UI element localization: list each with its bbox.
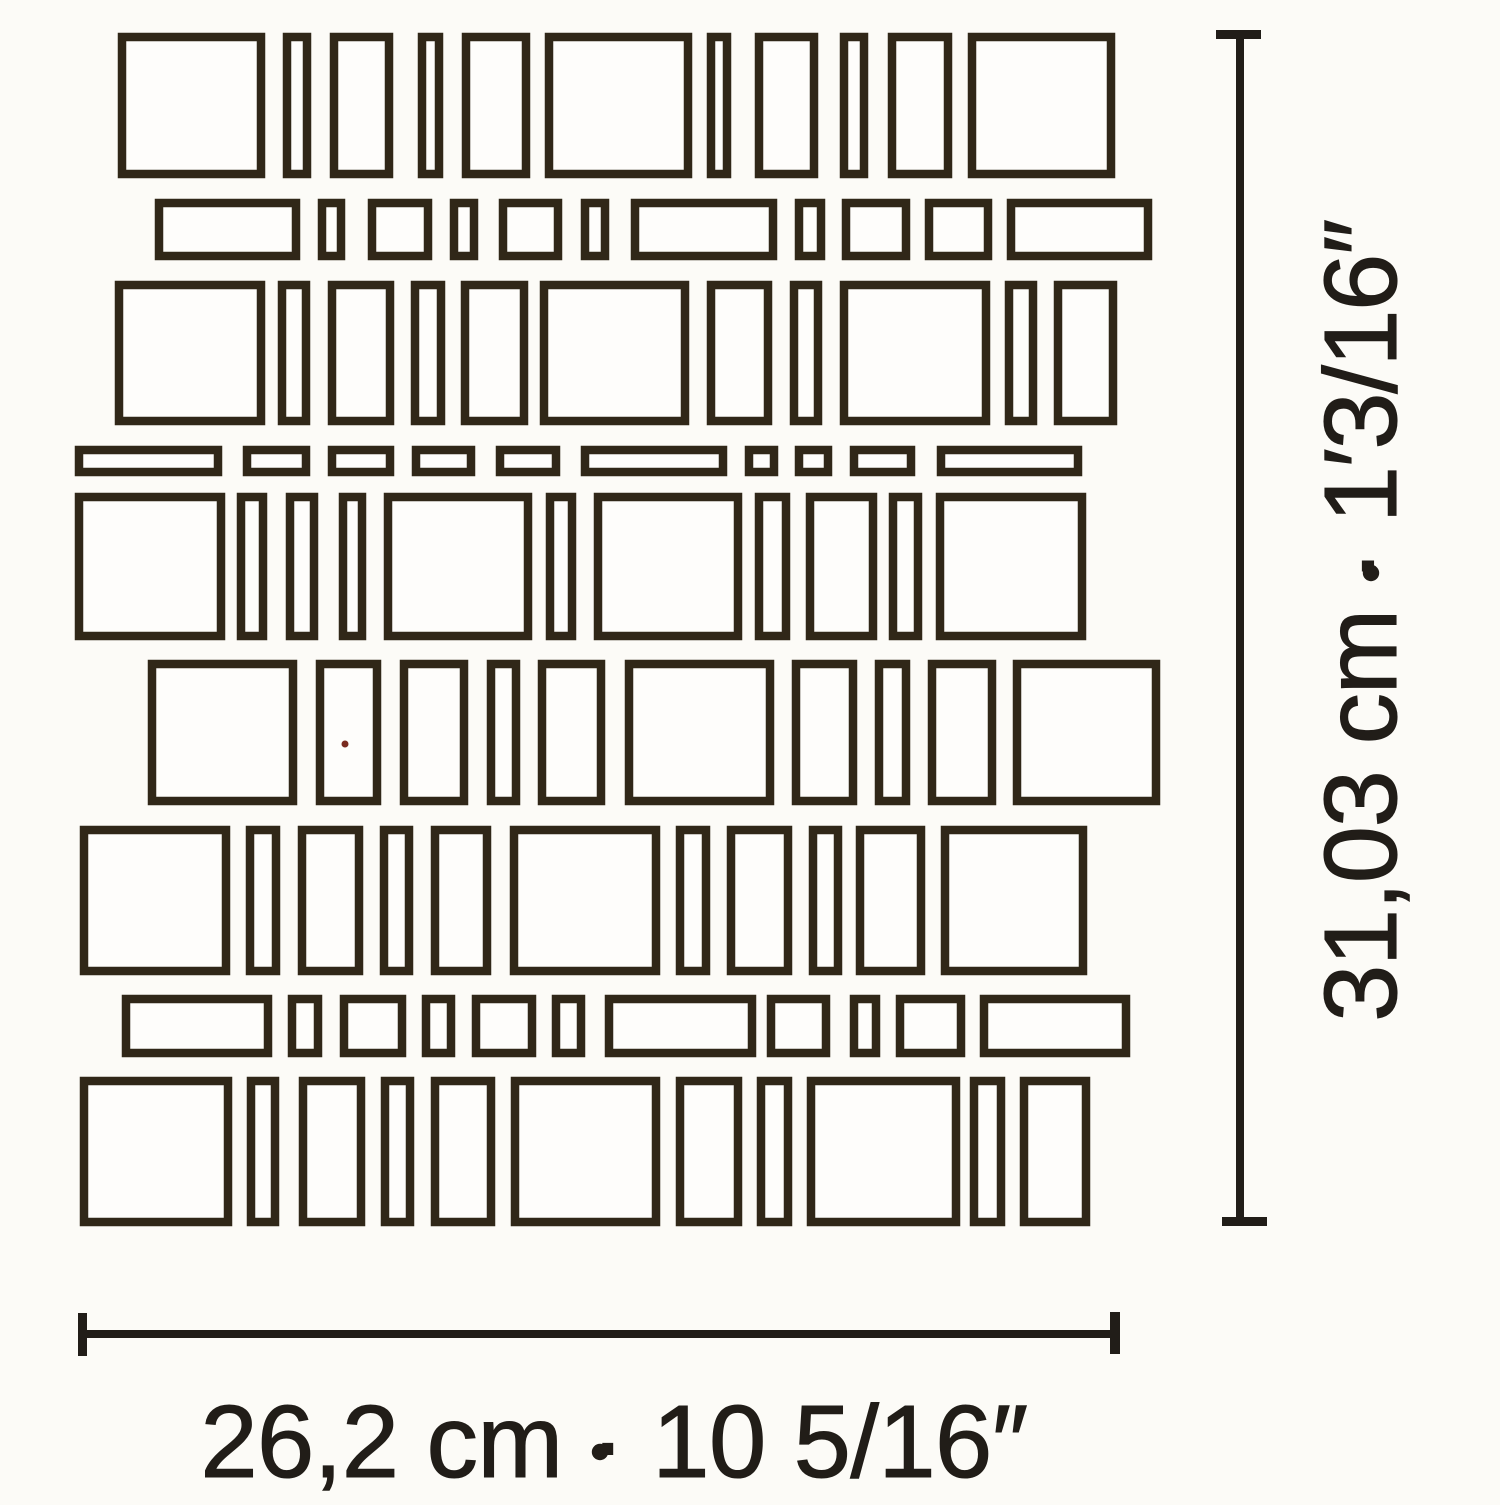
svg-text:31,03 cm · 1′3/16″: 31,03 cm · 1′3/16″	[1303, 220, 1418, 1022]
svg-text:26,2 cm · 10 5/16″: 26,2 cm · 10 5/16″	[200, 1384, 1027, 1499]
